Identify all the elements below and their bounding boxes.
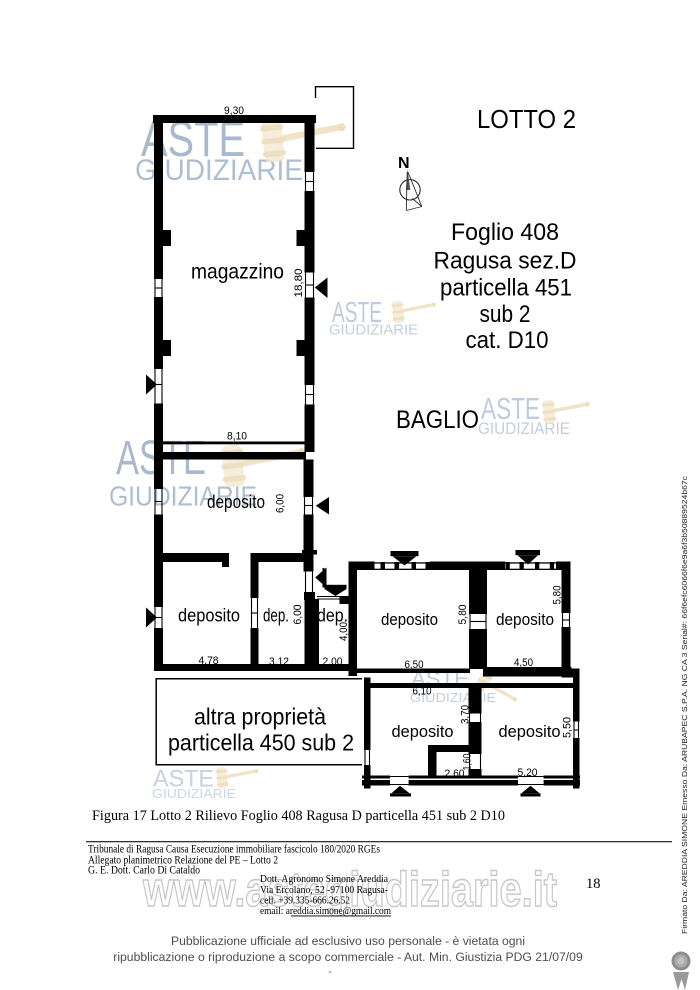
svg-text:cat. D10: cat. D10 <box>466 327 549 354</box>
svg-text:ripubblicazione o riproduzione: ripubblicazione o riproduzione a scopo c… <box>113 950 583 964</box>
svg-text:deposito: deposito <box>381 610 438 629</box>
svg-text:G. E. Dott. Carlo Di Cataldo: G. E. Dott. Carlo Di Cataldo <box>88 865 200 877</box>
svg-text:3,70: 3,70 <box>459 705 471 724</box>
svg-text:Ragusa sez.D: Ragusa sez.D <box>434 248 577 275</box>
svg-text:deposito: deposito <box>496 610 554 629</box>
svg-text:3,12: 3,12 <box>269 656 289 668</box>
svg-text:email: areddia.simone@gmail.co: email: areddia.simone@gmail.com <box>260 905 391 917</box>
svg-text:deposito: deposito <box>499 722 561 741</box>
svg-text:4,00: 4,00 <box>338 622 350 641</box>
svg-text:2,00: 2,00 <box>323 656 343 668</box>
svg-text:LOTTO 2: LOTTO 2 <box>477 104 576 134</box>
svg-text:altra proprietà: altra proprietà <box>194 704 326 730</box>
svg-text:9,30: 9,30 <box>224 105 244 117</box>
svg-text:18,80: 18,80 <box>293 269 305 298</box>
svg-text:dep.: dep. <box>263 606 289 626</box>
svg-text:BAGLIO: BAGLIO <box>396 406 479 434</box>
svg-text:8,10: 8,10 <box>227 431 247 443</box>
svg-text:5,50: 5,50 <box>561 717 573 738</box>
svg-text:Foglio 408: Foglio 408 <box>451 219 559 246</box>
svg-text:6,50: 6,50 <box>405 659 424 671</box>
svg-text:4,78: 4,78 <box>199 655 219 667</box>
svg-text:5,20: 5,20 <box>518 767 538 779</box>
svg-text:6,00: 6,00 <box>292 605 304 625</box>
svg-text:GIUDIZIARIE: GIUDIZIARIE <box>329 322 418 339</box>
svg-text:Firmato Da: AREDDIA SIMONE Eme: Firmato Da: AREDDIA SIMONE Emesso Da: AR… <box>680 476 689 934</box>
svg-text:5,80: 5,80 <box>552 586 564 605</box>
svg-text:deposito: deposito <box>207 492 265 512</box>
svg-text:6,00: 6,00 <box>275 494 287 513</box>
svg-text:Figura 17 Lotto 2 Rilievo Fogl: Figura 17 Lotto 2 Rilievo Foglio 408 Rag… <box>92 808 505 824</box>
svg-text:particella 451: particella 451 <box>440 275 572 302</box>
svg-text:-: - <box>328 967 331 978</box>
svg-text:18: 18 <box>586 876 601 892</box>
svg-text:GIUDIZIARIE: GIUDIZIARIE <box>478 420 570 438</box>
svg-text:Pubblicazione ufficiale ad esc: Pubblicazione ufficiale ad esclusivo uso… <box>171 934 525 948</box>
svg-text:N: N <box>398 155 410 172</box>
svg-text:deposito: deposito <box>392 722 454 741</box>
svg-text:5,80: 5,80 <box>457 605 469 625</box>
svg-text:6,10: 6,10 <box>413 686 432 698</box>
svg-text:particella 450 sub 2: particella 450 sub 2 <box>168 730 354 756</box>
svg-text:sub 2: sub 2 <box>480 301 531 328</box>
svg-text:deposito: deposito <box>178 606 240 626</box>
svg-text:magazzino: magazzino <box>191 261 284 284</box>
svg-text:4,50: 4,50 <box>514 657 533 669</box>
